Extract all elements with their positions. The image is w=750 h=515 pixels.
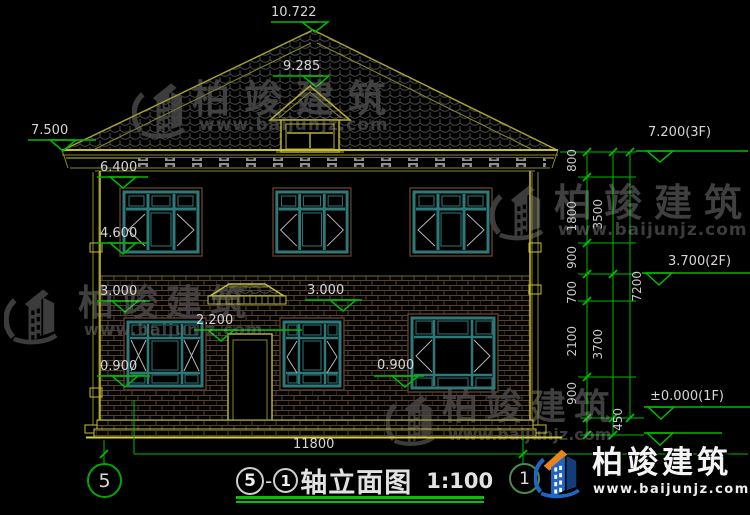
dim-2100: 2100	[566, 326, 578, 357]
win2-head-label: 6.400	[100, 161, 137, 174]
baijun-logo-icon	[534, 444, 586, 504]
window-2f-middle	[273, 188, 351, 256]
title-name: 轴立面图	[300, 461, 412, 500]
title-axis-a: 5	[236, 467, 264, 495]
dim-7200: 7200	[631, 271, 643, 302]
title-axis-b: 1	[273, 468, 298, 493]
window-2f-right	[410, 188, 492, 256]
door-head-label: 2.200	[196, 314, 233, 327]
dim-700: 700	[566, 281, 578, 304]
downspout-right	[529, 172, 546, 433]
title-scale: 1:100	[426, 469, 493, 493]
title-underline-thin	[236, 501, 484, 503]
width-dimension-label: 11800	[293, 438, 334, 451]
window-1f-left	[124, 318, 206, 390]
plinth	[94, 420, 536, 437]
ridge-elevation-label: 10.722	[271, 6, 317, 19]
elevation-drawing	[0, 0, 750, 515]
dim-1800: 1800	[566, 201, 578, 232]
sill-left-label: 0.900	[100, 360, 137, 373]
sill-mid-label: 0.900	[377, 359, 414, 372]
floor-left-label: 3.000	[100, 285, 137, 298]
roof-level-label: 7.200(3F)	[648, 126, 711, 139]
dim-900b: 900	[566, 382, 578, 405]
window-1f-right	[408, 314, 498, 392]
ground-level-label: ±0.000(1F)	[650, 390, 724, 403]
dim-3500: 3500	[592, 199, 604, 230]
window-1f-middle	[280, 318, 344, 390]
eave-elevation-label: 7.500	[31, 124, 68, 137]
brand-site: www.baijunjz.com	[593, 483, 750, 496]
title-separator: -	[265, 469, 272, 493]
dim-900a: 900	[566, 246, 578, 269]
win2-sill-label: 4.600	[100, 227, 137, 240]
floor-mid-label: 3.000	[307, 284, 344, 297]
dim-450: 450	[612, 408, 624, 431]
brand-name: 柏竣建筑	[592, 448, 732, 479]
title-underline-thick	[236, 496, 484, 499]
dim-3700: 3700	[592, 329, 604, 360]
downspout-left	[85, 172, 102, 433]
elevation-sheet: 柏竣建筑 www.baijunjz.com 柏竣建筑 www.baijunjz.…	[0, 0, 750, 515]
dormer-elevation-label: 9.285	[283, 60, 320, 73]
level2-label: 3.700(2F)	[668, 255, 731, 268]
entry-door	[228, 334, 272, 424]
dim-800: 800	[566, 149, 578, 172]
grid-bubble-5: 5	[87, 463, 122, 498]
drawing-title: 5 - 1 轴立面图 1:100	[236, 461, 493, 500]
